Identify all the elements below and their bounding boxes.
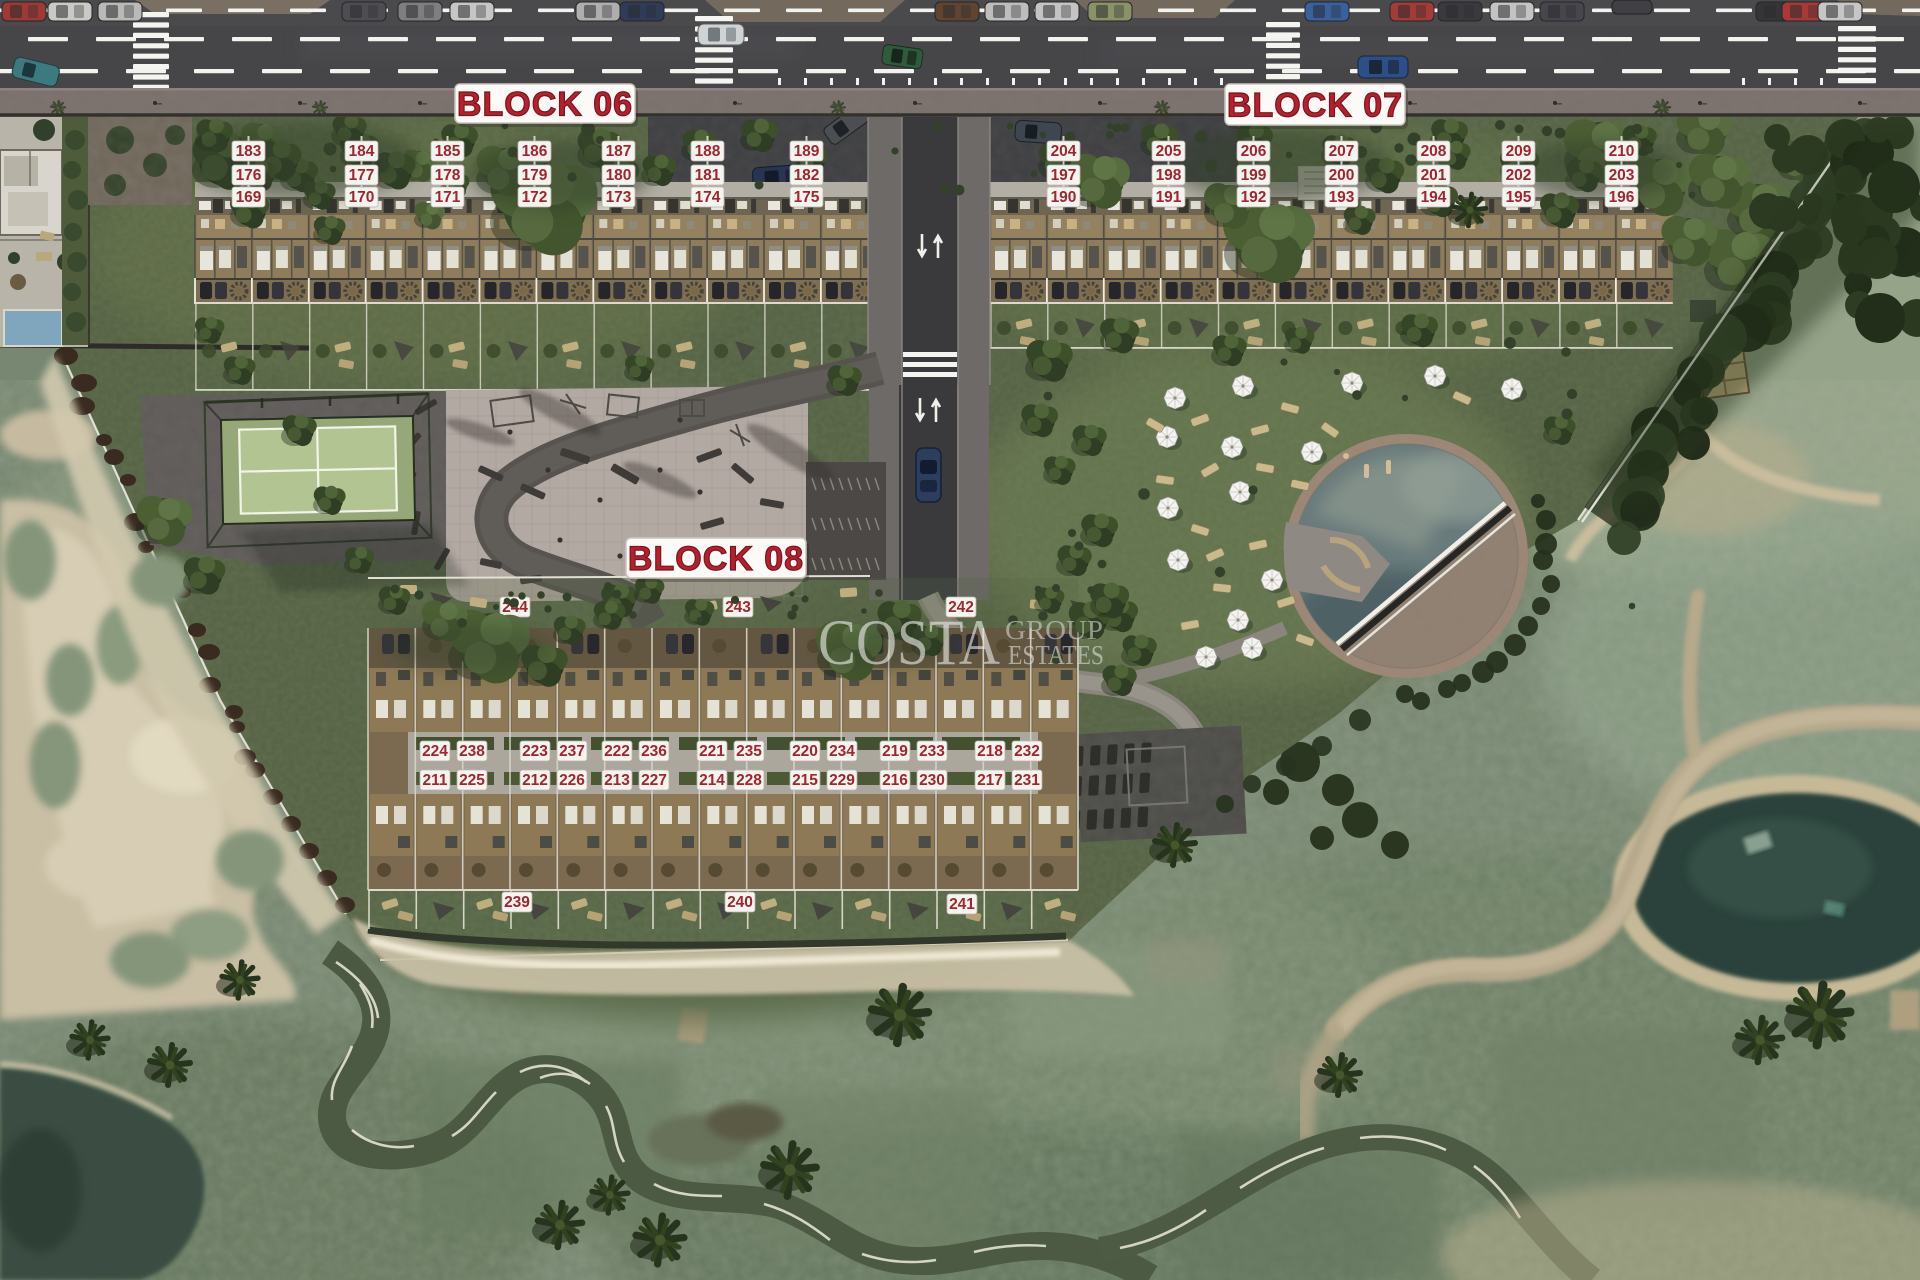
svg-text:237: 237 [559, 743, 585, 760]
svg-text:211: 211 [422, 772, 447, 789]
svg-text:202: 202 [1506, 167, 1532, 184]
svg-text:216: 216 [882, 772, 908, 789]
svg-text:223: 223 [522, 743, 548, 760]
svg-text:212: 212 [522, 772, 548, 789]
svg-text:207: 207 [1329, 143, 1355, 160]
svg-text:227: 227 [641, 772, 667, 789]
svg-text:205: 205 [1156, 143, 1182, 160]
svg-text:176: 176 [236, 167, 262, 184]
svg-text:241: 241 [949, 896, 975, 913]
svg-text:179: 179 [522, 167, 548, 184]
svg-text:COSTA: COSTA [818, 607, 1000, 679]
svg-text:238: 238 [459, 743, 485, 760]
svg-text:175: 175 [794, 189, 820, 206]
svg-text:215: 215 [792, 772, 818, 789]
svg-text:169: 169 [236, 189, 262, 206]
svg-text:189: 189 [794, 143, 820, 160]
svg-text:225: 225 [459, 772, 485, 789]
svg-text:236: 236 [641, 743, 667, 760]
svg-text:ESTATES: ESTATES [1008, 640, 1104, 670]
svg-text:187: 187 [606, 143, 632, 160]
svg-text:235: 235 [736, 743, 762, 760]
svg-text:222: 222 [604, 743, 630, 760]
svg-text:220: 220 [792, 743, 818, 760]
svg-text:BLOCK 06: BLOCK 06 [457, 86, 633, 124]
svg-text:233: 233 [919, 743, 945, 760]
svg-text:174: 174 [695, 189, 721, 206]
svg-text:182: 182 [794, 167, 820, 184]
svg-text:217: 217 [977, 772, 1003, 789]
svg-text:183: 183 [236, 143, 262, 160]
svg-text:180: 180 [606, 167, 632, 184]
svg-text:240: 240 [727, 894, 753, 911]
svg-text:171: 171 [435, 189, 461, 206]
svg-text:239: 239 [504, 894, 530, 911]
svg-text:BLOCK 08: BLOCK 08 [628, 540, 804, 578]
svg-text:197: 197 [1051, 167, 1077, 184]
svg-text:198: 198 [1156, 167, 1182, 184]
svg-text:191: 191 [1156, 189, 1182, 206]
svg-text:232: 232 [1014, 743, 1040, 760]
svg-text:194: 194 [1421, 189, 1447, 206]
svg-text:177: 177 [349, 167, 375, 184]
svg-text:206: 206 [1241, 143, 1267, 160]
svg-text:209: 209 [1506, 143, 1532, 160]
svg-text:218: 218 [977, 743, 1003, 760]
svg-text:234: 234 [829, 743, 855, 760]
svg-text:188: 188 [695, 143, 721, 160]
svg-text:201: 201 [1421, 167, 1447, 184]
svg-text:204: 204 [1051, 143, 1077, 160]
svg-text:200: 200 [1329, 167, 1355, 184]
svg-text:229: 229 [829, 772, 855, 789]
svg-text:231: 231 [1014, 772, 1040, 789]
svg-text:178: 178 [435, 167, 461, 184]
svg-text:221: 221 [699, 743, 725, 760]
svg-text:185: 185 [435, 143, 461, 160]
svg-text:199: 199 [1241, 167, 1267, 184]
svg-text:196: 196 [1609, 189, 1635, 206]
svg-text:214: 214 [699, 772, 725, 789]
svg-text:230: 230 [919, 772, 945, 789]
svg-text:213: 213 [604, 772, 630, 789]
svg-text:195: 195 [1506, 189, 1532, 206]
svg-text:172: 172 [522, 189, 548, 206]
svg-text:181: 181 [695, 167, 721, 184]
svg-text:203: 203 [1609, 167, 1635, 184]
svg-text:228: 228 [736, 772, 762, 789]
svg-text:BLOCK 07: BLOCK 07 [1227, 87, 1403, 125]
svg-text:226: 226 [559, 772, 585, 789]
svg-text:184: 184 [349, 143, 375, 160]
svg-text:224: 224 [422, 743, 448, 760]
svg-text:190: 190 [1051, 189, 1077, 206]
svg-text:193: 193 [1329, 189, 1355, 206]
svg-text:186: 186 [522, 143, 548, 160]
svg-text:208: 208 [1421, 143, 1447, 160]
svg-text:219: 219 [882, 743, 908, 760]
svg-text:192: 192 [1241, 189, 1267, 206]
svg-text:170: 170 [349, 189, 375, 206]
svg-text:210: 210 [1609, 143, 1635, 160]
svg-text:173: 173 [606, 189, 632, 206]
